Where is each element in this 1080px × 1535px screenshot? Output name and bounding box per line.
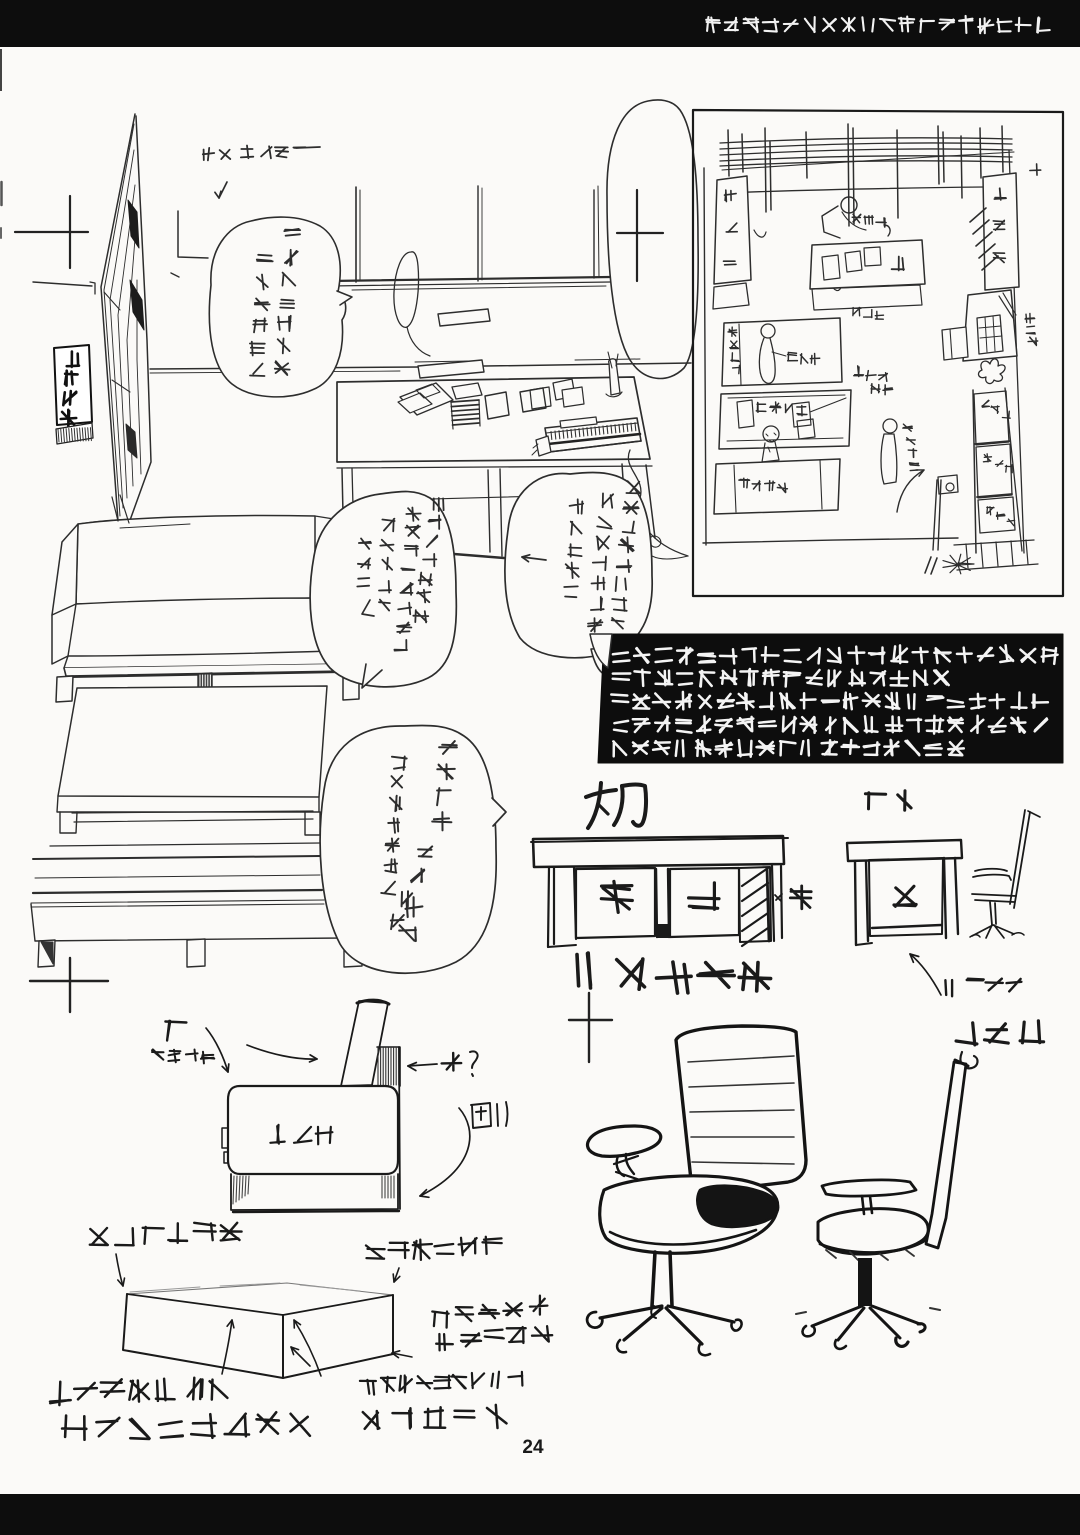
svg-text:24: 24: [522, 1437, 544, 1458]
